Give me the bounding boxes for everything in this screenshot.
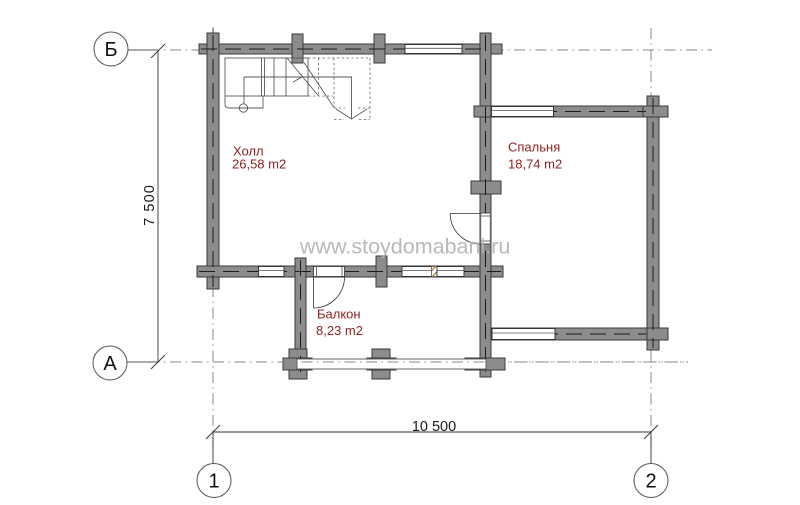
svg-text:8,23 m2: 8,23 m2 [316, 323, 363, 338]
svg-text:Б: Б [104, 39, 117, 61]
svg-text:1: 1 [208, 471, 219, 493]
svg-text:Балкон: Балкон [317, 307, 361, 322]
svg-text:10 500: 10 500 [412, 419, 456, 435]
svg-text:7 500: 7 500 [142, 184, 158, 226]
svg-text:2: 2 [645, 471, 656, 493]
svg-text:18,74 m2: 18,74 m2 [508, 157, 562, 172]
svg-text:Спальня: Спальня [508, 140, 560, 155]
svg-text:А: А [103, 353, 117, 375]
svg-text:www.stoydomabani.ru: www.stoydomabani.ru [299, 235, 510, 259]
svg-text:26,58 m2: 26,58 m2 [232, 157, 286, 172]
